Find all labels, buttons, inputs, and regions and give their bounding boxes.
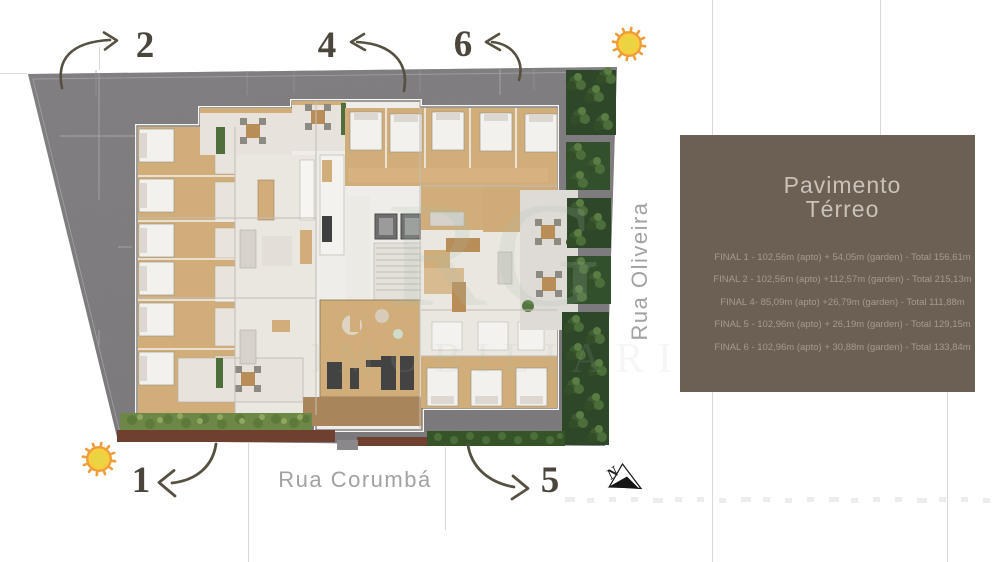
svg-text:2: 2 [136,25,155,66]
svg-text:Rua Oliveira: Rua Oliveira [627,201,652,340]
svg-text:5: 5 [541,460,560,501]
svg-text:1: 1 [132,460,151,501]
svg-text:4: 4 [318,25,337,66]
svg-text:IMOBILIARIA: IMOBILIARIA [310,336,730,382]
svg-text:Rua Corumbá: Rua Corumbá [278,467,431,492]
svg-text:6: 6 [454,24,473,65]
svg-text:RG: RG [387,172,607,338]
